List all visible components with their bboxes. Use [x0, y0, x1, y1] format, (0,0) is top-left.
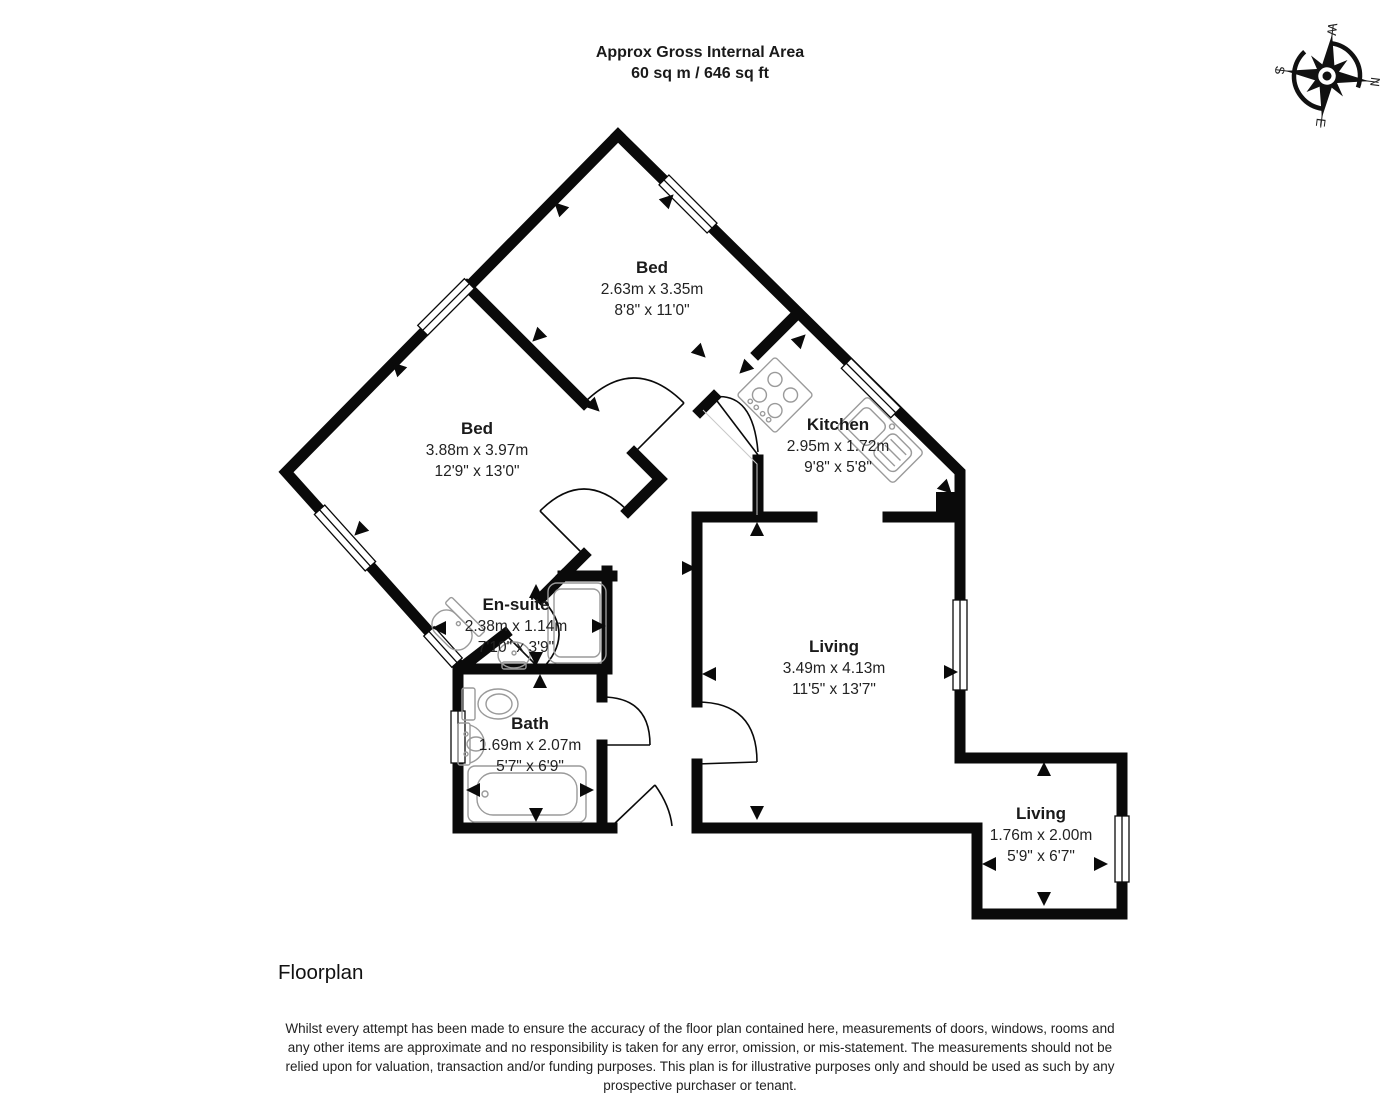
room-name: En-suite [482, 595, 549, 614]
room-name: Bath [511, 714, 549, 733]
measure-arrow [734, 359, 754, 379]
walls [286, 135, 1122, 914]
measure-arrow [750, 806, 764, 820]
measure-arrow [1094, 857, 1108, 871]
window [841, 358, 900, 417]
room-metric: 1.69m x 2.07m [479, 737, 582, 754]
measure-arrow [791, 329, 811, 349]
door-arc [602, 697, 650, 745]
floorplan-caption: Floorplan [278, 961, 363, 984]
compass-w: W [1324, 22, 1340, 37]
measure-arrow [702, 667, 716, 681]
disclaimer-line-2: any other items are approximate and no r… [288, 1040, 1112, 1055]
room-metric: 3.49m x 4.13m [783, 660, 886, 677]
room-label-living-2: Living 1.76m x 2.00m 5'9" x 6'7" [990, 804, 1093, 865]
room-name: Living [809, 637, 859, 656]
door-arc [714, 397, 758, 455]
room-imperial: 8'8" x 11'0" [614, 302, 689, 319]
floorplan-svg: N E S W Approx Gross Internal Area 60 sq… [0, 0, 1400, 1110]
measure-arrow [580, 783, 594, 797]
door-arc [697, 702, 757, 764]
disclaimer-line-4: prospective purchaser or tenant. [603, 1078, 797, 1093]
window [418, 279, 475, 336]
measure-arrow [533, 674, 547, 688]
compass-rose-icon: N E S W [1266, 17, 1389, 135]
room-metric: 2.38m x 1.14m [465, 618, 568, 635]
windows [314, 175, 1129, 882]
room-label-living: Living 3.49m x 4.13m 11'5" x 13'7" [783, 637, 886, 698]
room-metric: 3.88m x 3.97m [426, 442, 529, 459]
window [953, 600, 967, 690]
toilet-icon [462, 688, 518, 720]
measure-arrow [1037, 762, 1051, 776]
footer: Floorplan Whilst every attempt has been … [278, 961, 1115, 1093]
window [1115, 816, 1129, 882]
room-label-bed-2: Bed 3.88m x 3.97m 12'9" x 13'0" [426, 419, 529, 480]
door-arc [612, 785, 672, 826]
room-imperial: 5'9" x 6'7" [1007, 848, 1075, 865]
room-imperial: 11'5" x 13'7" [792, 681, 876, 698]
disclaimer-line-3: relied upon for valuation, transaction a… [285, 1059, 1114, 1074]
door-arc [540, 489, 628, 555]
measure-arrow [982, 857, 996, 871]
room-imperial: 12'9" x 13'0" [434, 463, 519, 480]
header: Approx Gross Internal Area 60 sq m / 646… [596, 44, 804, 82]
compass-e: E [1313, 117, 1329, 128]
floorplan-page: N E S W Approx Gross Internal Area 60 sq… [0, 0, 1400, 1110]
room-imperial: 7'10" x 3'9" [478, 639, 554, 656]
page-title-line2: 60 sq m / 646 sq ft [631, 65, 770, 82]
page-title-line1: Approx Gross Internal Area [596, 44, 804, 61]
room-name: Bed [636, 258, 668, 277]
room-name: Living [1016, 804, 1066, 823]
measure-arrow [1037, 892, 1051, 906]
compass-s: S [1272, 65, 1288, 76]
kitchen-counter-outline [703, 410, 757, 515]
measure-arrow [691, 343, 711, 363]
room-metric: 2.95m x 1.72m [787, 438, 890, 455]
room-metric: 2.63m x 3.35m [601, 281, 704, 298]
disclaimer-line-1: Whilst every attempt has been made to en… [285, 1021, 1114, 1036]
room-label-ensuite: En-suite 2.38m x 1.14m 7'10" x 3'9" [465, 595, 568, 656]
room-label-kitchen: Kitchen 2.95m x 1.72m 9'8" x 5'8" [787, 415, 890, 476]
room-metric: 1.76m x 2.00m [990, 827, 1093, 844]
room-imperial: 5'7" x 6'9" [496, 758, 564, 775]
measure-arrow [750, 522, 764, 536]
room-name: Kitchen [807, 415, 869, 434]
window [314, 505, 375, 571]
room-label-bed-1: Bed 2.63m x 3.35m 8'8" x 11'0" [601, 258, 704, 319]
room-name: Bed [461, 419, 493, 438]
compass-n: N [1367, 76, 1383, 87]
room-imperial: 9'8" x 5'8" [804, 459, 872, 476]
door-arc [584, 378, 684, 453]
